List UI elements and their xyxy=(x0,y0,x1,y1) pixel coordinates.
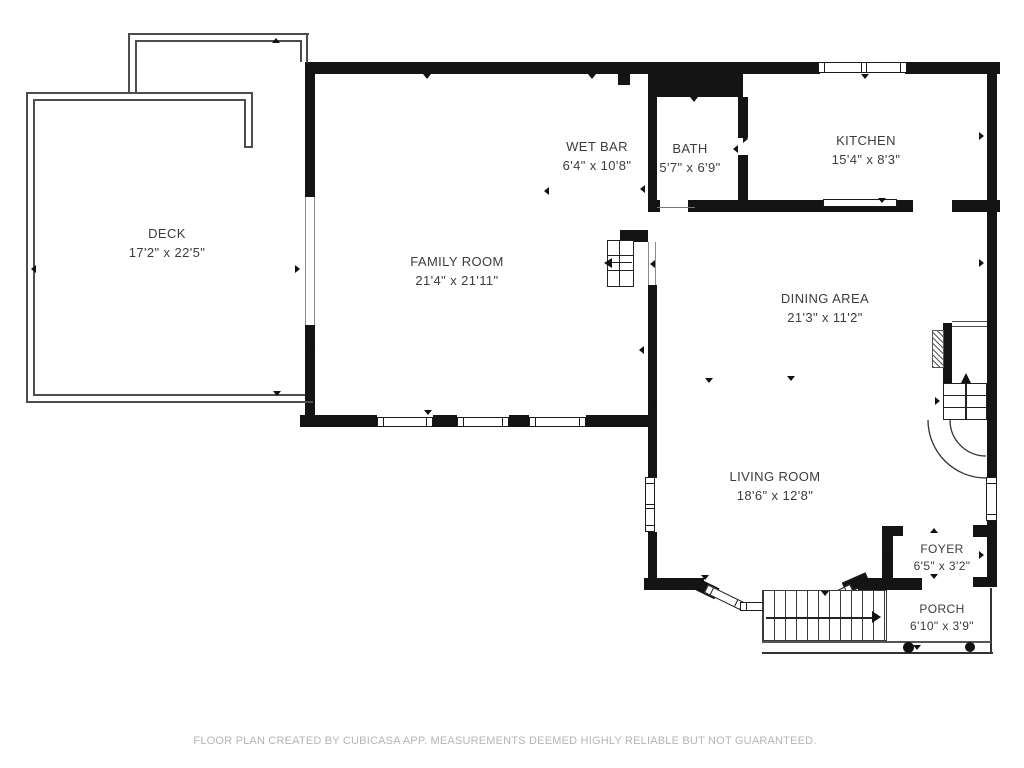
room-dimensions: 6'5" x 3'2" xyxy=(914,558,971,575)
direction-marker-icon xyxy=(423,74,431,79)
direction-marker-icon xyxy=(640,185,645,193)
direction-marker-icon xyxy=(701,575,709,580)
window xyxy=(457,417,509,427)
direction-marker-icon xyxy=(913,645,921,650)
direction-marker-icon xyxy=(639,346,644,354)
direction-marker-icon xyxy=(861,74,869,79)
room-label-wet-bar: WET BAR 6'4" x 10'8" xyxy=(563,137,632,175)
direction-marker-icon xyxy=(424,410,432,415)
direction-marker-icon xyxy=(652,399,657,407)
wall xyxy=(738,97,748,138)
deck-railing xyxy=(244,99,246,148)
porch-edge xyxy=(990,588,992,654)
direction-marker-icon xyxy=(979,551,984,559)
deck-railing xyxy=(300,40,302,62)
entry-steps xyxy=(762,590,887,641)
porch-edge xyxy=(762,652,993,654)
window-mullion xyxy=(861,63,862,72)
room-label-family-room: FAMILY ROOM 21'4" x 21'11" xyxy=(410,252,504,290)
window xyxy=(645,477,655,532)
room-name: FAMILY ROOM xyxy=(410,252,504,271)
stair-landing-edge xyxy=(952,321,987,322)
window xyxy=(818,62,907,73)
room-dimensions: 6'10" x 3'9" xyxy=(910,618,974,635)
footer-disclaimer: FLOOR PLAN CREATED BY CUBICASA APP. MEAS… xyxy=(193,735,816,747)
window-mullion xyxy=(646,504,654,505)
deck-railing xyxy=(26,401,313,403)
entry-steps-arrow-shaft xyxy=(766,617,874,619)
wall xyxy=(509,415,529,427)
room-label-porch: PORCH 6'10" x 3'9" xyxy=(910,601,974,635)
room-name: FOYER xyxy=(914,541,971,558)
deck-railing xyxy=(306,33,308,63)
room-name: DINING AREA xyxy=(781,289,869,308)
deck-railing xyxy=(26,92,252,94)
room-name: DECK xyxy=(129,224,206,243)
wall xyxy=(433,415,457,427)
room-dimensions: 6'4" x 10'8" xyxy=(563,156,632,175)
deck-railing xyxy=(33,99,35,396)
deck-railing xyxy=(33,99,245,101)
direction-marker-icon xyxy=(272,38,280,43)
direction-marker-icon xyxy=(705,378,713,383)
direction-marker-icon xyxy=(295,265,300,273)
direction-marker-icon xyxy=(979,132,984,140)
deck-railing xyxy=(33,394,305,396)
wall xyxy=(905,62,1000,74)
deck-railing xyxy=(128,33,309,35)
direction-marker-icon xyxy=(787,376,795,381)
room-name: LIVING ROOM xyxy=(729,467,820,486)
deck-door-opening xyxy=(305,197,315,325)
wall xyxy=(952,200,1000,212)
direction-marker-icon xyxy=(935,397,940,405)
wall xyxy=(973,525,997,537)
porch-edge xyxy=(762,641,991,643)
deck-railing xyxy=(26,92,28,403)
room-label-deck: DECK 17'2" x 22'5" xyxy=(129,224,206,262)
wall xyxy=(897,200,913,212)
room-dimensions: 18'6" x 12'8" xyxy=(729,486,820,505)
room-label-dining-area: DINING AREA 21'3" x 11'2" xyxy=(781,289,869,327)
window-mullion xyxy=(646,508,654,509)
threshold-line xyxy=(657,207,695,208)
stair-tread xyxy=(607,270,634,271)
room-name: BATH xyxy=(659,139,720,158)
stair-tread xyxy=(607,255,634,256)
direction-marker-icon xyxy=(708,205,716,210)
room-label-kitchen: KITCHEN 15'4" x 8'3" xyxy=(832,131,901,169)
stair-down-arrow-icon xyxy=(604,258,612,268)
porch-post xyxy=(965,642,975,652)
floor-plan: DECK 17'2" x 22'5" FAMILY ROOM 21'4" x 2… xyxy=(0,0,1024,768)
direction-marker-icon xyxy=(31,265,36,273)
direction-marker-icon xyxy=(650,260,655,268)
stair-winder-arc xyxy=(900,380,1024,500)
direction-marker-icon xyxy=(690,97,698,102)
deck-railing xyxy=(244,146,252,148)
wall xyxy=(655,62,743,97)
direction-marker-icon xyxy=(979,259,984,267)
room-dimensions: 21'4" x 21'11" xyxy=(410,271,504,290)
direction-marker-icon xyxy=(273,391,281,396)
deck-railing xyxy=(135,40,137,92)
room-name: KITCHEN xyxy=(832,131,901,150)
direction-marker-icon xyxy=(878,198,886,203)
direction-marker-icon xyxy=(930,528,938,533)
stair-rail xyxy=(619,240,620,287)
wall xyxy=(648,200,660,212)
direction-marker-icon xyxy=(544,187,549,195)
wall xyxy=(823,207,897,212)
wall xyxy=(305,325,315,427)
room-name: PORCH xyxy=(910,601,974,618)
wall xyxy=(943,323,952,383)
direction-marker-icon xyxy=(733,145,738,153)
direction-marker-icon xyxy=(308,345,313,353)
room-dimensions: 15'4" x 8'3" xyxy=(832,150,901,169)
wall xyxy=(586,415,657,427)
direction-marker-icon xyxy=(588,74,596,79)
wall xyxy=(738,155,748,202)
room-dimensions: 5'7" x 6'9" xyxy=(659,158,720,177)
deck-railing xyxy=(251,92,253,148)
direction-marker-icon xyxy=(884,552,889,560)
stair-landing-edge xyxy=(952,326,987,327)
wall xyxy=(973,577,995,587)
stair-arrow-shaft xyxy=(611,262,632,263)
wall xyxy=(618,74,630,85)
window xyxy=(377,417,433,427)
wall xyxy=(300,415,377,427)
chimney-hatch xyxy=(932,330,944,368)
window xyxy=(529,417,586,427)
room-label-foyer: FOYER 6'5" x 3'2" xyxy=(914,541,971,575)
room-label-living-room: LIVING ROOM 18'6" x 12'8" xyxy=(729,467,820,505)
direction-marker-icon xyxy=(821,591,829,596)
room-name: WET BAR xyxy=(563,137,632,156)
room-dimensions: 21'3" x 11'2" xyxy=(781,308,869,327)
room-dimensions: 17'2" x 22'5" xyxy=(129,243,206,262)
room-label-bath: BATH 5'7" x 6'9" xyxy=(659,139,720,177)
window-mullion xyxy=(866,63,867,72)
direction-marker-icon xyxy=(743,135,748,143)
entry-steps-arrow-icon xyxy=(872,611,881,623)
wall xyxy=(882,526,903,536)
wall xyxy=(648,285,657,478)
deck-railing xyxy=(128,33,130,92)
wall xyxy=(305,62,315,197)
